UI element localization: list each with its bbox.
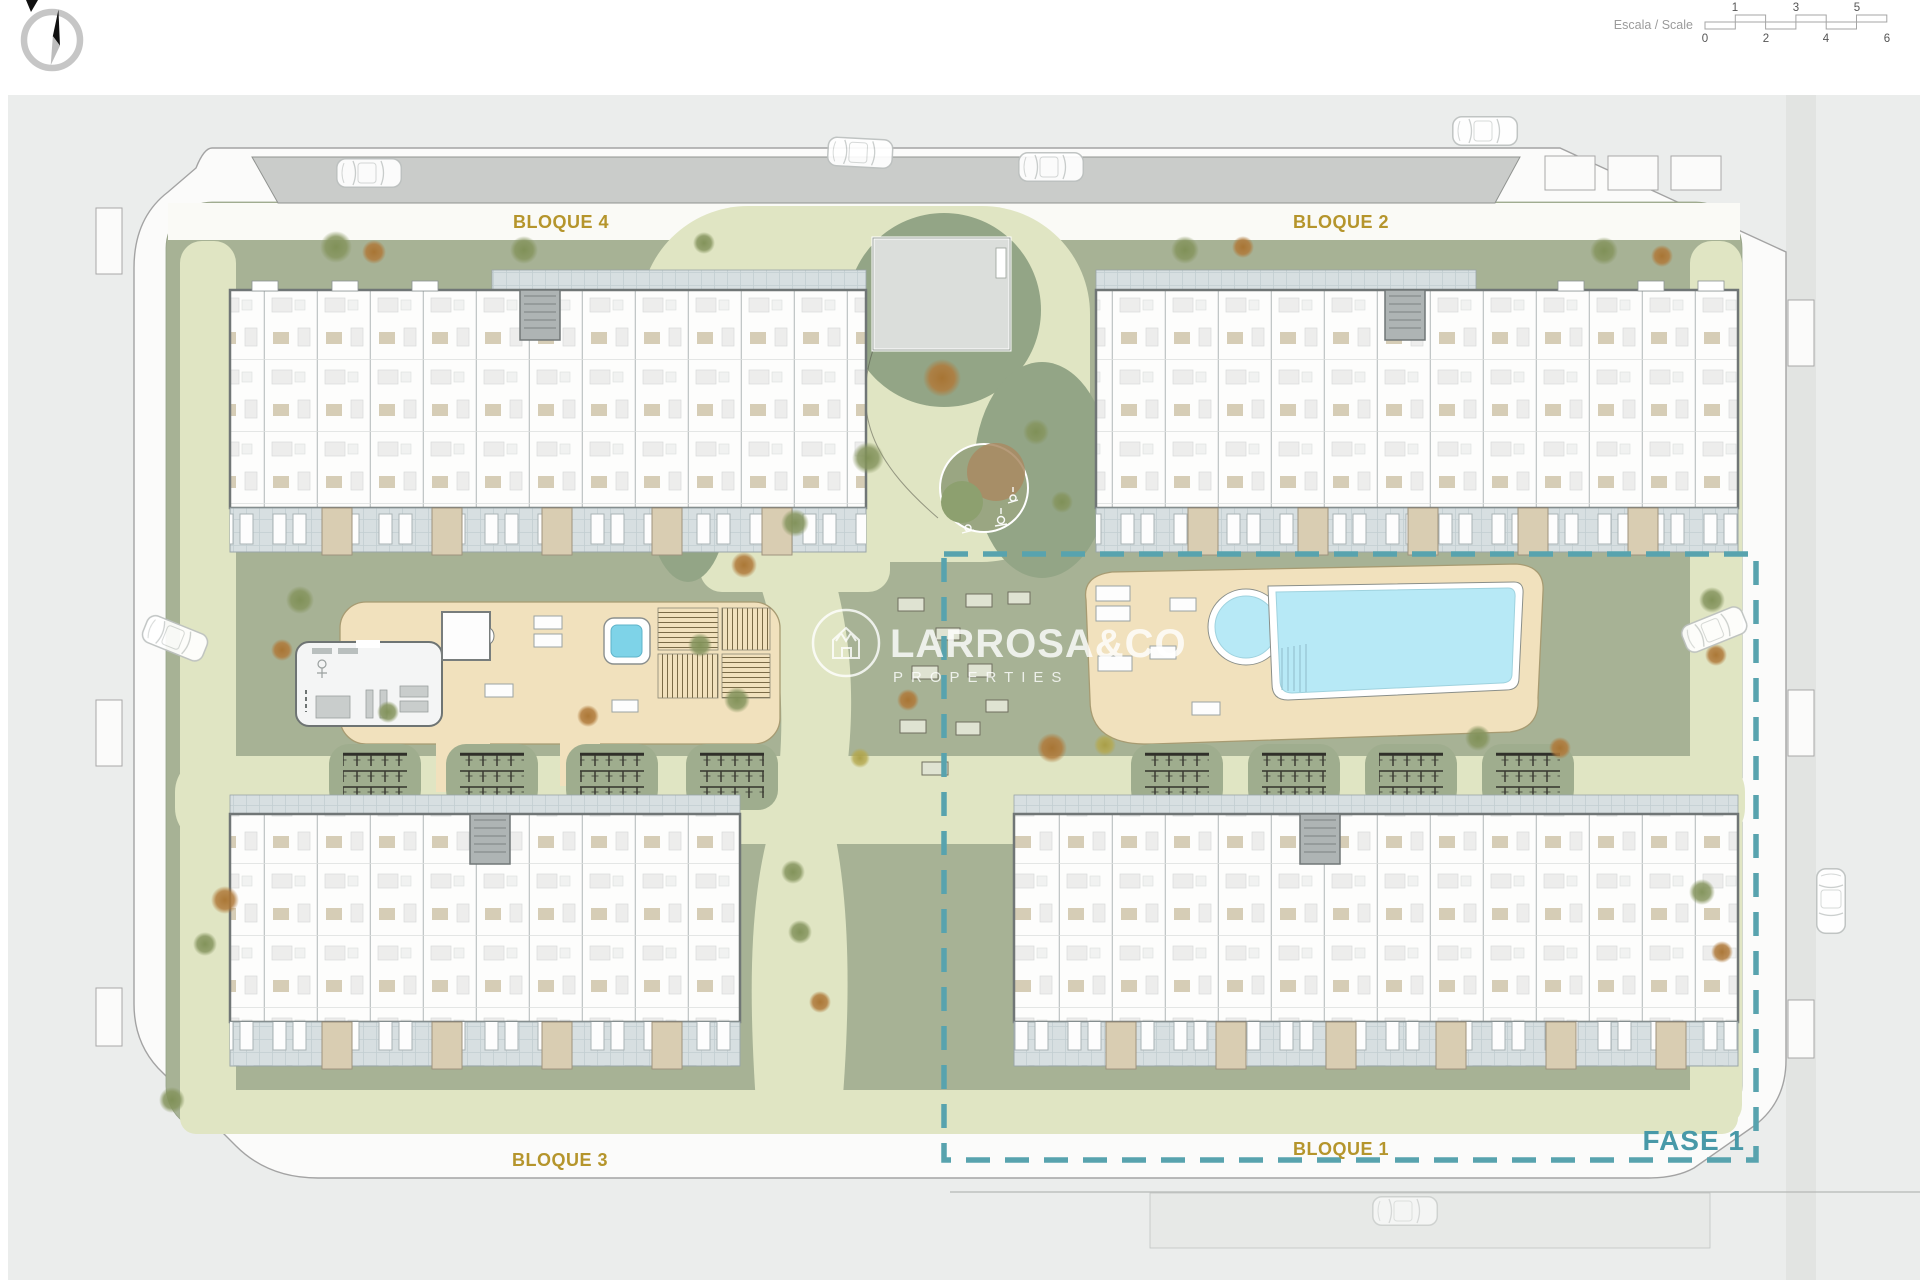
building-bloque3 [230, 795, 740, 1069]
car [1453, 117, 1518, 146]
label-bloque3: BLOQUE 3 [512, 1150, 608, 1170]
scale-tick: 2 [1763, 33, 1769, 45]
label-bloque1: BLOQUE 1 [1293, 1139, 1389, 1159]
label-bloque4: BLOQUE 4 [513, 212, 609, 232]
car [827, 137, 893, 169]
scale-tick: 0 [1702, 33, 1708, 45]
scale-tick: 3 [1793, 2, 1799, 14]
watermark-brand: LARROSA&CO [890, 622, 1187, 666]
car [1019, 153, 1084, 182]
label-fase1: FASE 1 [1643, 1125, 1745, 1156]
playground [940, 443, 1028, 533]
scale-tick: 1 [1732, 2, 1738, 14]
pavilion-building [442, 612, 490, 660]
plaza-square [873, 238, 1010, 350]
spa-pool [604, 618, 650, 664]
scale-label: Escala / Scale [1614, 18, 1693, 32]
scale-tick: 5 [1854, 2, 1860, 14]
outer-road-strip [1786, 95, 1816, 1280]
building-bloque4 [230, 270, 866, 555]
car [1817, 869, 1846, 934]
scale-tick: 6 [1884, 33, 1890, 45]
scale-tick: 4 [1823, 33, 1830, 45]
car [337, 159, 402, 188]
site-plan-svg: BLOQUE 4 BLOQUE 2 BLOQUE 3 BLOQUE 1 FASE… [0, 0, 1920, 1280]
car [1373, 1197, 1438, 1226]
main-pool [1268, 582, 1523, 700]
watermark-subtitle: PROPERTIES [893, 669, 1069, 686]
site-plan-page: BLOQUE 4 BLOQUE 2 BLOQUE 3 BLOQUE 1 FASE… [0, 0, 1920, 1280]
building-bloque1 [1014, 795, 1738, 1069]
label-bloque2: BLOQUE 2 [1293, 212, 1389, 232]
building-bloque2 [1096, 270, 1738, 555]
gym-building [296, 640, 442, 726]
